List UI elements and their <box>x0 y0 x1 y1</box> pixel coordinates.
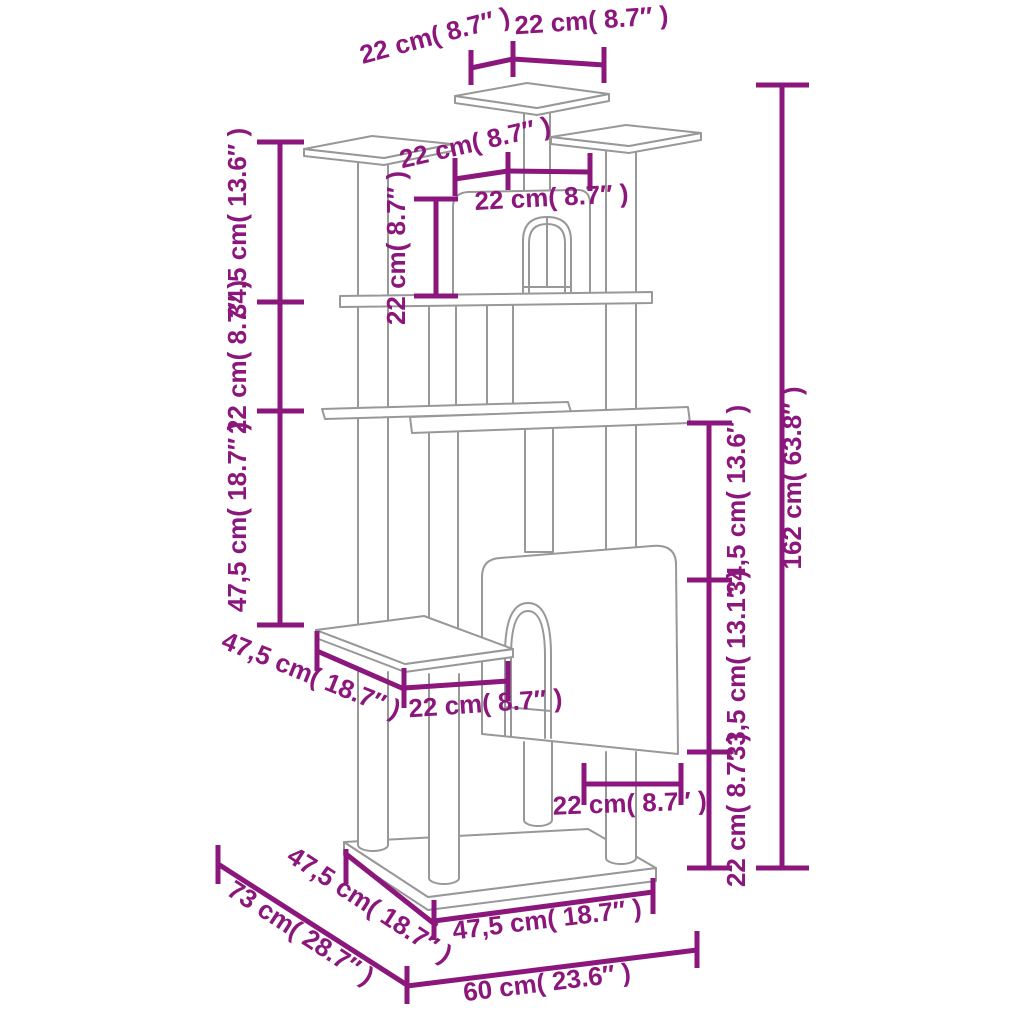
scratching-post <box>358 415 388 632</box>
label-left-segment-middle: 22 cm( 8.7″ ) <box>222 280 252 434</box>
scratching-post-right <box>606 140 636 299</box>
label-right-segment-middle: 33,5 cm( 13.1″ ) <box>721 570 751 760</box>
label-upper-house-height: 22 cm( 8.7″ ) <box>381 171 411 325</box>
label-right-segment-lower: 22 cm( 8.7″ ) <box>721 733 751 887</box>
scratching-post <box>606 426 636 565</box>
label-base-total-width: 60 cm( 23.6″ ) <box>461 957 632 1007</box>
label-lower-house-door-width: 22 cm( 8.7″ ) <box>552 785 707 820</box>
label-total-height: 162 cm( 63.8″ ) <box>777 386 807 569</box>
dim-top-platform <box>471 41 604 85</box>
scratching-post <box>606 299 636 418</box>
dim-left-ladder <box>257 142 304 625</box>
label-top-platform-width: 22 cm( 8.7″ ) <box>513 0 669 40</box>
dim-upper-house-height <box>414 199 458 296</box>
scratching-post <box>429 428 458 645</box>
scratching-post <box>429 299 456 420</box>
scratching-post <box>524 742 552 826</box>
diagram-canvas: 22 cm( 8.7″ ) 22 cm( 8.7″ ) 22 cm( 8.7″ … <box>0 0 1024 1024</box>
label-top-platform-depth: 22 cm( 8.7″ ) <box>356 1 513 70</box>
upper-right-platform <box>551 125 701 153</box>
cat-tree-dimension-diagram: 22 cm( 8.7″ ) 22 cm( 8.7″ ) 22 cm( 8.7″ … <box>0 0 1024 1024</box>
scratching-post <box>525 428 553 552</box>
label-right-segment-upper: 34,5 cm( 13.6″ ) <box>721 405 751 595</box>
label-left-segment-lower: 47,5 cm( 18.7″ ) <box>222 422 252 612</box>
scratching-post <box>487 299 513 418</box>
top-platform <box>455 83 609 115</box>
